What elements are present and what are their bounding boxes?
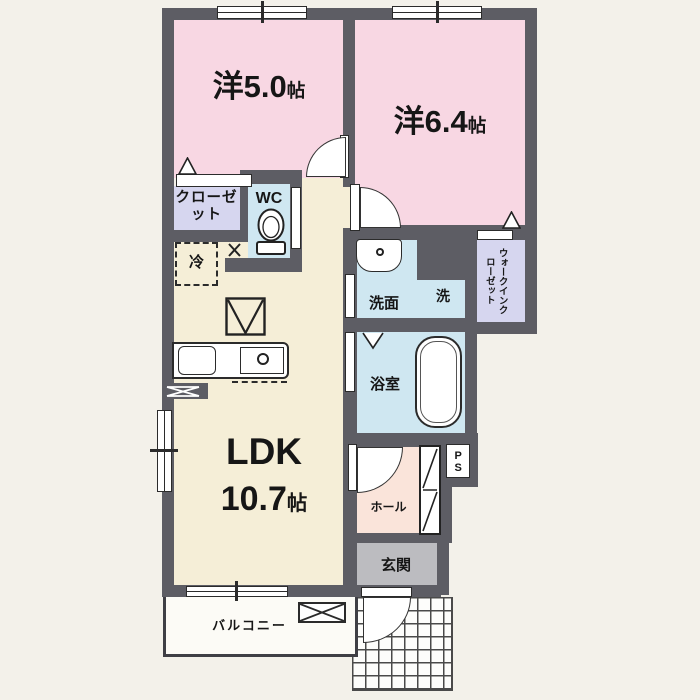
window-tick <box>235 581 238 601</box>
window-tick <box>436 1 439 23</box>
bathroom-label: 浴室 <box>354 376 416 394</box>
wall <box>441 487 452 543</box>
wic-front-bar <box>477 230 513 240</box>
washroom-label: 洗面 <box>352 295 416 313</box>
kitchen-faucet-dot <box>257 353 269 365</box>
bathtub-inner <box>420 341 457 423</box>
fridge-label: 冷 <box>175 254 218 272</box>
sink-faucet-dot <box>376 248 384 256</box>
vent-x-icon <box>166 386 200 397</box>
bifold-door-icon <box>502 211 521 229</box>
bedroom5-label: 洋5.0帖 <box>174 68 344 105</box>
wall <box>225 258 302 272</box>
wall <box>525 8 537 334</box>
floor-plan: { "rooms": { "bedroom_5": {"label": "洋5.… <box>0 0 700 700</box>
shoe-cabinet-icon <box>419 445 441 535</box>
wall <box>343 318 465 332</box>
wc-door-leaf <box>291 187 301 249</box>
hall-label: ホール <box>357 500 420 514</box>
closet-front-bar <box>176 174 252 187</box>
washer-label: 洗 <box>424 288 462 305</box>
ldk-label: LDK 10.7帖 <box>174 430 354 520</box>
toilet-icon <box>254 208 288 256</box>
vent-x-icon <box>227 243 242 257</box>
bedroom6-label: 洋6.4帖 <box>355 103 525 140</box>
wall-cabinet-icon <box>225 297 266 336</box>
wall <box>465 322 537 334</box>
pipe-space-label: PS <box>451 448 464 476</box>
wc-label: WC <box>248 189 290 208</box>
folding-door-icon <box>362 332 384 350</box>
wall <box>465 235 477 435</box>
balcony-label: バルコニー <box>172 618 327 634</box>
closet-label: クローゼット <box>174 190 239 225</box>
window-tick <box>261 1 264 23</box>
counter-edge-dashed <box>232 381 287 383</box>
wall <box>417 235 467 280</box>
entrance-door-leaf <box>361 587 412 597</box>
wic-label: ウォークインクローゼット <box>482 246 508 316</box>
bifold-door-icon <box>178 157 197 175</box>
entrance-label: 玄関 <box>352 557 440 575</box>
door-leaf <box>350 184 360 231</box>
stove-icon <box>178 346 216 375</box>
wall <box>172 230 248 242</box>
wall <box>162 8 174 597</box>
